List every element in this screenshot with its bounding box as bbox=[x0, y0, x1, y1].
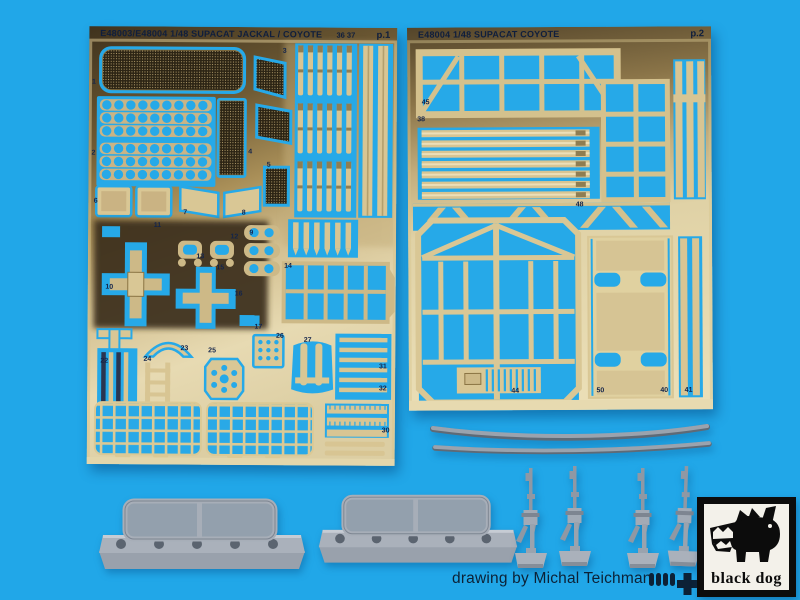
part-number-label: 23 bbox=[180, 345, 188, 352]
resin-rod-parts bbox=[425, 415, 715, 460]
part-number-label: 1 bbox=[92, 79, 96, 86]
resin-windscreen-casting-2 bbox=[313, 491, 523, 565]
part-number-label: 24 bbox=[143, 356, 151, 363]
part-number-label: 14 bbox=[284, 262, 292, 269]
part-number-label: 40 bbox=[660, 387, 668, 394]
part-number-label: 50 bbox=[597, 387, 605, 394]
part-number-label: 17 bbox=[255, 324, 263, 331]
resin-windscreen-casting-1 bbox=[93, 495, 311, 571]
part-number-label: 10 bbox=[105, 283, 113, 290]
blackdog-logo-text: black dog bbox=[704, 570, 789, 588]
part-number-label: 9 bbox=[249, 229, 253, 236]
part-number-label: 30 bbox=[382, 427, 390, 434]
part-number-label: 32 bbox=[379, 386, 387, 393]
part-number-label: 31 bbox=[379, 364, 387, 371]
mplus-logo-icon bbox=[648, 563, 700, 595]
part-number-label: 27 bbox=[304, 337, 312, 344]
part-number-label: 16 bbox=[235, 291, 243, 298]
part-number-label: 13 bbox=[196, 253, 204, 260]
part-number-label: 3 bbox=[283, 48, 287, 55]
photo-etch-sheet-right: E48004 1/48 SUPACAT COYOTE p.2 453848445… bbox=[407, 26, 713, 411]
part-number-label: 25 bbox=[208, 347, 216, 354]
part-number-label: 11 bbox=[154, 222, 161, 229]
sheet-left-part-numbers: 1234567891112131015141617222423252627313… bbox=[87, 26, 398, 466]
part-number-label: 15 bbox=[216, 264, 224, 271]
product-photo-scene: E48003/E48004 1/48 SUPACAT JACKAL / COYO… bbox=[0, 0, 800, 600]
photo-etch-sheet-left: E48003/E48004 1/48 SUPACAT JACKAL / COYO… bbox=[87, 26, 398, 466]
blackdog-logo: black dog bbox=[697, 497, 796, 597]
part-number-label: 41 bbox=[685, 387, 693, 394]
part-number-label: 26 bbox=[276, 332, 284, 339]
part-number-label: 44 bbox=[511, 388, 519, 395]
part-number-label: 4 bbox=[248, 148, 252, 155]
sheet-right-part-numbers: 45384844504041 bbox=[407, 26, 713, 411]
part-number-label: 2 bbox=[92, 150, 96, 157]
part-number-label: 8 bbox=[242, 210, 246, 217]
resin-rifle-parts bbox=[513, 466, 705, 568]
part-number-label: 45 bbox=[422, 99, 430, 106]
blackdog-logo-field: black dog bbox=[704, 504, 789, 590]
part-number-label: 7 bbox=[183, 209, 187, 216]
part-number-label: 48 bbox=[576, 201, 584, 208]
credit-text: drawing by Michal Teichman bbox=[452, 570, 652, 588]
part-number-label: 6 bbox=[94, 198, 98, 205]
part-number-label: 5 bbox=[267, 162, 271, 169]
dog-icon bbox=[704, 506, 789, 572]
part-number-label: 12 bbox=[230, 234, 238, 241]
part-number-label: 38 bbox=[417, 116, 425, 123]
part-number-label: 22 bbox=[100, 358, 108, 365]
